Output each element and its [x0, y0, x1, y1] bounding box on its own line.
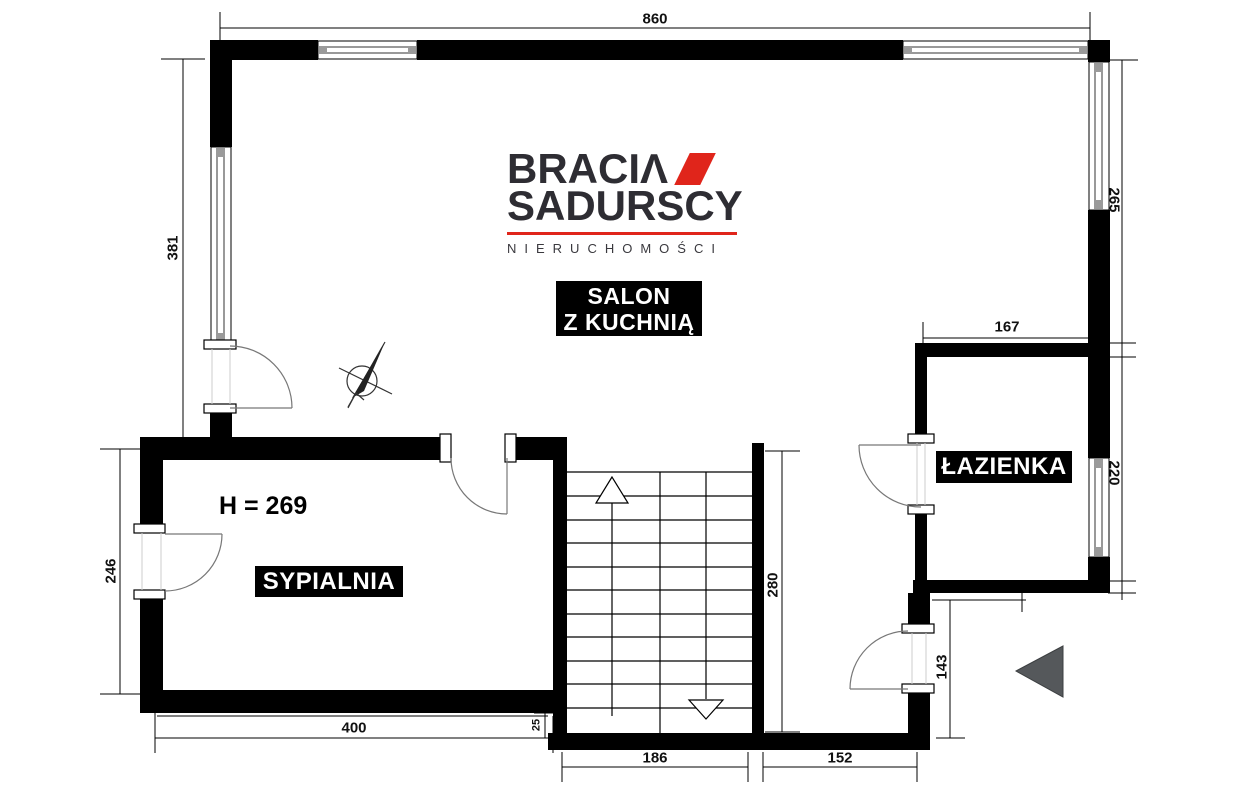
stairs-up-arrow: [596, 477, 628, 716]
north-arrow-icon: [339, 342, 392, 408]
living-label-line1: SALON: [588, 283, 671, 309]
logo-accent-shape-icon: [674, 153, 716, 185]
floor-plan: BRACIΛ SADURSCY NIERUCHOMOŚCI SALON Z KU…: [0, 0, 1240, 791]
logo-brand-line2: SADURSCY: [507, 182, 743, 229]
room-label-bathroom: ŁAZIENKA: [936, 451, 1072, 483]
dim-bathroom-width: 167: [994, 320, 1019, 335]
living-label-line2: Z KUCHNIĄ: [564, 309, 695, 335]
window-top-left: [318, 41, 417, 59]
room-label-living: SALON Z KUCHNIĄ: [556, 281, 702, 336]
dim-entry-depth: 143: [935, 654, 950, 679]
floorplan-drawing: [0, 0, 1240, 791]
stairs-down-arrow: [689, 472, 723, 719]
room-label-bedroom: SYPIALNIA: [255, 566, 403, 597]
dim-bedroom-width: 400: [341, 721, 366, 736]
dim-stairs-width: 186: [642, 751, 667, 766]
logo-divider: [507, 232, 737, 235]
dim-stairs-depth: 280: [766, 572, 781, 597]
agency-logo: BRACIΛ SADURSCY NIERUCHOMOŚCI: [507, 151, 752, 256]
window-left: [211, 147, 231, 343]
staircase: [567, 472, 752, 733]
dim-left-upper: 381: [166, 235, 181, 260]
window-top-right: [903, 41, 1088, 59]
logo-tagline: NIERUCHOMOŚCI: [507, 241, 752, 256]
dim-left-lower: 246: [104, 558, 119, 583]
dim-top-width: 860: [642, 12, 667, 27]
dim-right-window-upper: 265: [1107, 187, 1122, 212]
dimension-lines: [100, 12, 1138, 782]
dim-gap: 25: [532, 719, 543, 731]
dim-right-window-lower: 220: [1107, 460, 1122, 485]
entrance-arrow-icon: [1016, 646, 1063, 697]
dim-entry-width: 152: [827, 751, 852, 766]
ceiling-height-note: H = 269: [219, 492, 307, 521]
